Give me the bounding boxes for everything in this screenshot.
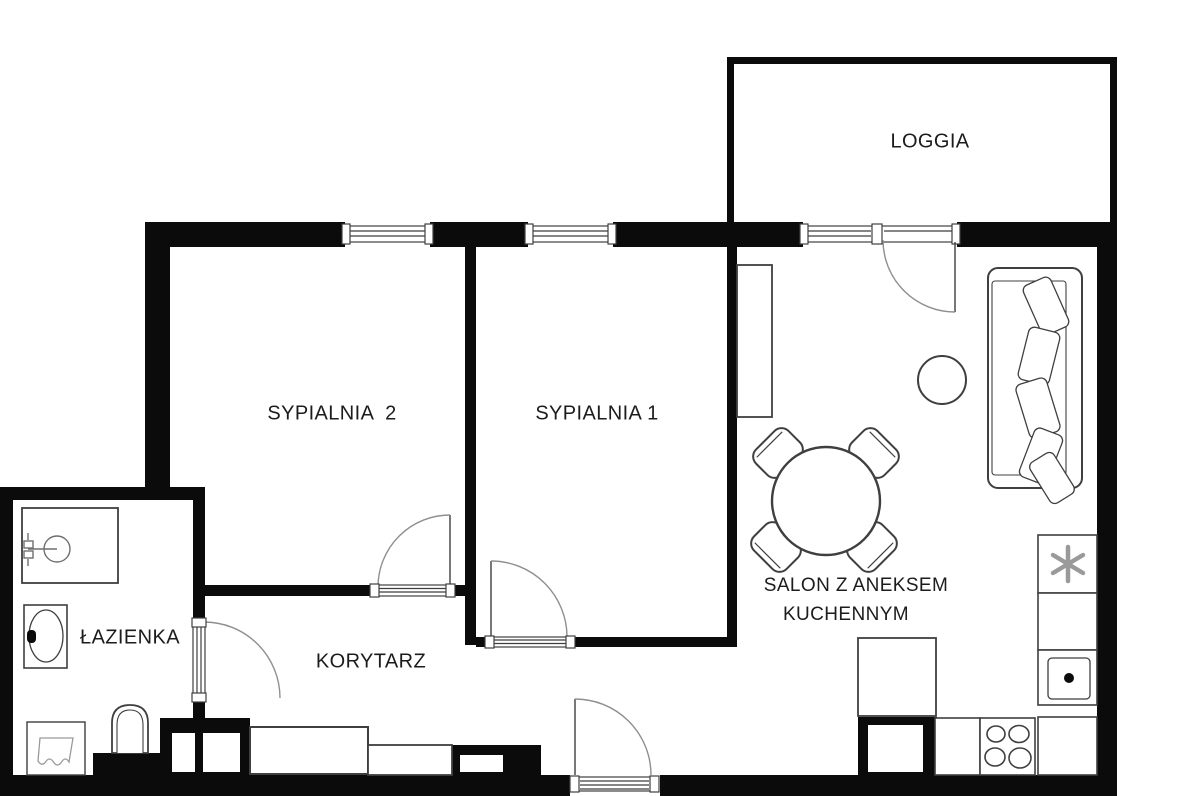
bathroom-door-bar — [193, 620, 205, 700]
kitchen-cabinet-2 — [1038, 717, 1097, 775]
room-label-sypialnia2: SYPIALNIA 2 — [267, 403, 396, 426]
bathroom-wall-right-upper — [193, 500, 205, 620]
wall-bottom-2 — [660, 775, 1117, 796]
floorplan-canvas — [0, 0, 1193, 796]
laundry-icon — [38, 738, 73, 765]
bathroom-wall-top — [0, 487, 205, 500]
bathroom-wall-left — [0, 487, 13, 796]
window-syp1-jamb-r — [608, 224, 616, 244]
room-label-sypialnia1: SYPIALNIA 1 — [535, 403, 658, 426]
kitchen-cabinet-1 — [1038, 593, 1097, 650]
dining-table — [772, 447, 880, 555]
syp1-door-threshold — [487, 637, 573, 647]
syp2-door-arc — [378, 515, 450, 587]
kitchen-island — [858, 638, 936, 716]
wall-top-1 — [145, 222, 345, 247]
corridor-low-unit — [368, 745, 452, 775]
salon-furniture — [737, 265, 1082, 576]
wall-syp1-bottom-b — [573, 637, 732, 647]
wall-right — [1097, 222, 1117, 775]
window-syp2-jamb-l — [342, 224, 350, 244]
wall-top-2 — [430, 222, 528, 247]
room-label-loggia: LOGGIA — [890, 131, 969, 154]
wardrobe-niche-1 — [172, 733, 195, 772]
window-syp2-jamb-r — [425, 224, 433, 244]
sofa — [988, 268, 1082, 506]
syp2-door-threshold — [372, 585, 453, 596]
window-syp1 — [528, 226, 613, 242]
bath-sink-faucet — [27, 630, 36, 643]
walls — [0, 57, 1117, 796]
corridor-wardrobe — [250, 727, 368, 774]
toilet-backwall — [93, 753, 162, 775]
balcony-door-arc — [883, 240, 955, 312]
wall-syp1-salon — [727, 247, 737, 647]
wall-top-3 — [613, 222, 803, 247]
floorplan: LOGGIA SYPIALNIA 2 SYPIALNIA 1 ŁAZIENKA … — [0, 0, 1193, 796]
toilet-icon — [112, 705, 148, 753]
bathroom-door-arc — [204, 622, 280, 698]
wall-bottom-1 — [0, 775, 570, 796]
entrance-door-arc — [575, 699, 651, 775]
window-loggia-mullion — [872, 224, 882, 244]
room-label-lazienka: ŁAZIENKA — [80, 627, 180, 650]
wall-syp2-corridor-a — [203, 585, 372, 596]
cabinet-niche — [868, 725, 923, 772]
dining-set — [747, 424, 903, 576]
corridor-furniture — [250, 727, 452, 775]
wardrobe-niche-2 — [203, 733, 240, 772]
room-label-korytarz: KORYTARZ — [316, 651, 426, 674]
kitchen-counter — [935, 718, 980, 775]
wall-top-4 — [957, 222, 1117, 247]
salon-wardrobe — [737, 265, 772, 417]
stove — [980, 718, 1035, 775]
unit-niche — [460, 755, 503, 772]
loggia-wall-left — [727, 57, 734, 227]
window-loggia-jamb-r — [952, 224, 960, 244]
window-syp1-jamb-l — [525, 224, 533, 244]
room-label-salon-line2: KUCHENNYM — [783, 604, 909, 626]
wall-left — [145, 222, 170, 500]
wall-bedroom-divider — [465, 247, 476, 645]
side-table — [918, 356, 966, 404]
window-syp2 — [345, 226, 430, 242]
syp1-door-arc — [491, 561, 567, 637]
loggia-wall-top — [727, 57, 1117, 64]
room-label-salon-line1: SALON Z ANEKSEM — [764, 575, 948, 597]
window-loggia-jamb-l — [800, 224, 808, 244]
loggia-wall-right — [1110, 57, 1117, 227]
